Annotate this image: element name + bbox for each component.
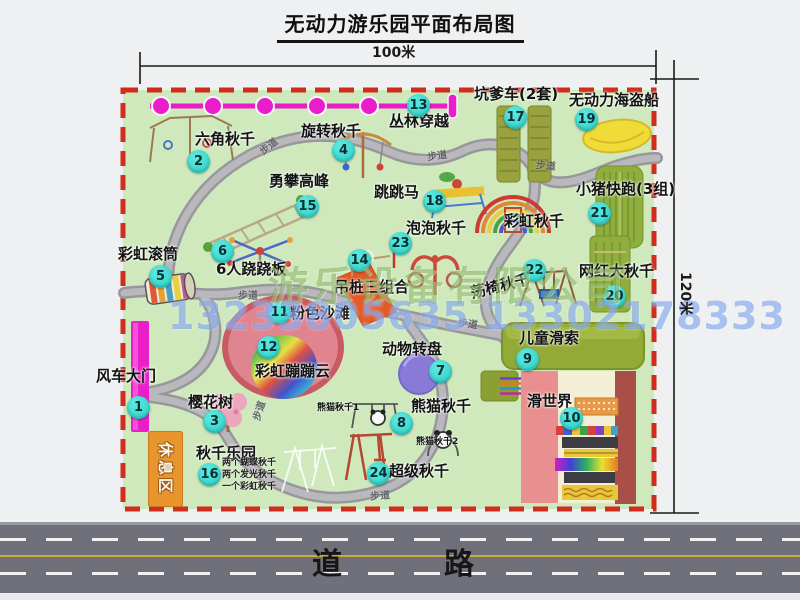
slide-world-icon [521,371,636,504]
badge-jungle-crossing: 13 [407,94,430,117]
label-pit-car: 坑爹车(2套) [474,86,558,103]
label-bubble-swing: 泡泡秋千 [406,220,466,237]
label-cherry-tree: 樱花树 [188,394,233,411]
road-label: 道 路 [0,539,800,583]
label-rainbow-swing: 彩虹秋千 [504,213,564,230]
badge-piggy-run: 21 [588,202,611,225]
label-hexagon-swing: 六角秋千 [195,131,255,148]
label-slide-world: 滑世界 [527,393,572,410]
page-title: 无动力游乐园平面布局图 [0,8,800,43]
badge-rainbow-bounce-cloud: 12 [257,336,280,359]
badge-bubble-swing: 23 [389,232,412,255]
badge-climbing-peak: 15 [296,195,319,218]
badge-rotary-swing: 4 [332,139,355,162]
label-panda-swing-2: 熊猫秋千2 [416,438,458,448]
badge-animal-turntable: 7 [429,360,452,383]
label-windmill-gate: 风车大门 [96,368,156,385]
swing-paradise-notes: 两个蝴蝶秋千 两个发光秋千 一个彩虹秋千 [222,457,276,493]
badge-swing-paradise: 16 [198,463,221,486]
badge-windmill-gate: 1 [127,396,150,419]
badge-six-person-seesaw: 6 [211,240,234,263]
label-panda-swing-1: 熊猫秋千1 [317,404,359,414]
badge-cherry-tree: 3 [203,410,226,433]
label-piggy-run: 小猪快跑(3组) [576,181,675,198]
trail-label: 步道 [426,146,448,164]
label-pirate-ship: 无动力海盗船 [569,92,659,109]
height-dimension-label: 120米 [676,272,696,315]
badge-panda-swing: 8 [390,412,413,435]
road: 道 路 [0,522,800,596]
label-rainbow-roller: 彩虹滚筒 [118,246,178,263]
label-rotary-swing: 旋转秋千 [301,123,361,140]
note-line: 一个彩虹秋千 [222,481,276,493]
road-sidewalk [0,593,800,600]
width-dimension-label: 100米 [372,42,415,62]
note-line: 两个发光秋千 [222,469,276,481]
label-rainbow-bounce-cloud: 彩虹蹦蹦云 [255,363,330,380]
rest-area: 休息区 [148,431,183,507]
badge-pirate-ship: 19 [575,108,598,131]
label-panda-swing: 熊猫秋千 [411,398,471,415]
label-animal-turntable: 动物转盘 [382,341,442,358]
trail-label: 步道 [369,486,390,503]
park-layout-diagram: 无动力游乐园平面布局图 100米 120米 道 路 休息区 风车大门 六角秋千 … [0,0,800,600]
badge-hexagon-swing: 2 [187,150,210,173]
badge-pit-car: 17 [504,106,527,129]
badge-super-swing: 24 [367,462,390,485]
trail-label: 步道 [535,156,556,173]
badge-rainbow-roller: 5 [149,265,172,288]
rest-area-label: 休息区 [155,442,176,496]
label-climbing-peak: 勇攀高峰 [269,173,329,190]
badge-jumping-horse: 18 [423,190,446,213]
label-jumping-horse: 跳跳马 [374,184,419,201]
label-super-swing: 超级秋千 [389,463,449,480]
note-line: 两个蝴蝶秋千 [222,457,276,469]
badge-kids-zipline: 9 [516,348,539,371]
badge-slide-world: 10 [560,407,583,430]
